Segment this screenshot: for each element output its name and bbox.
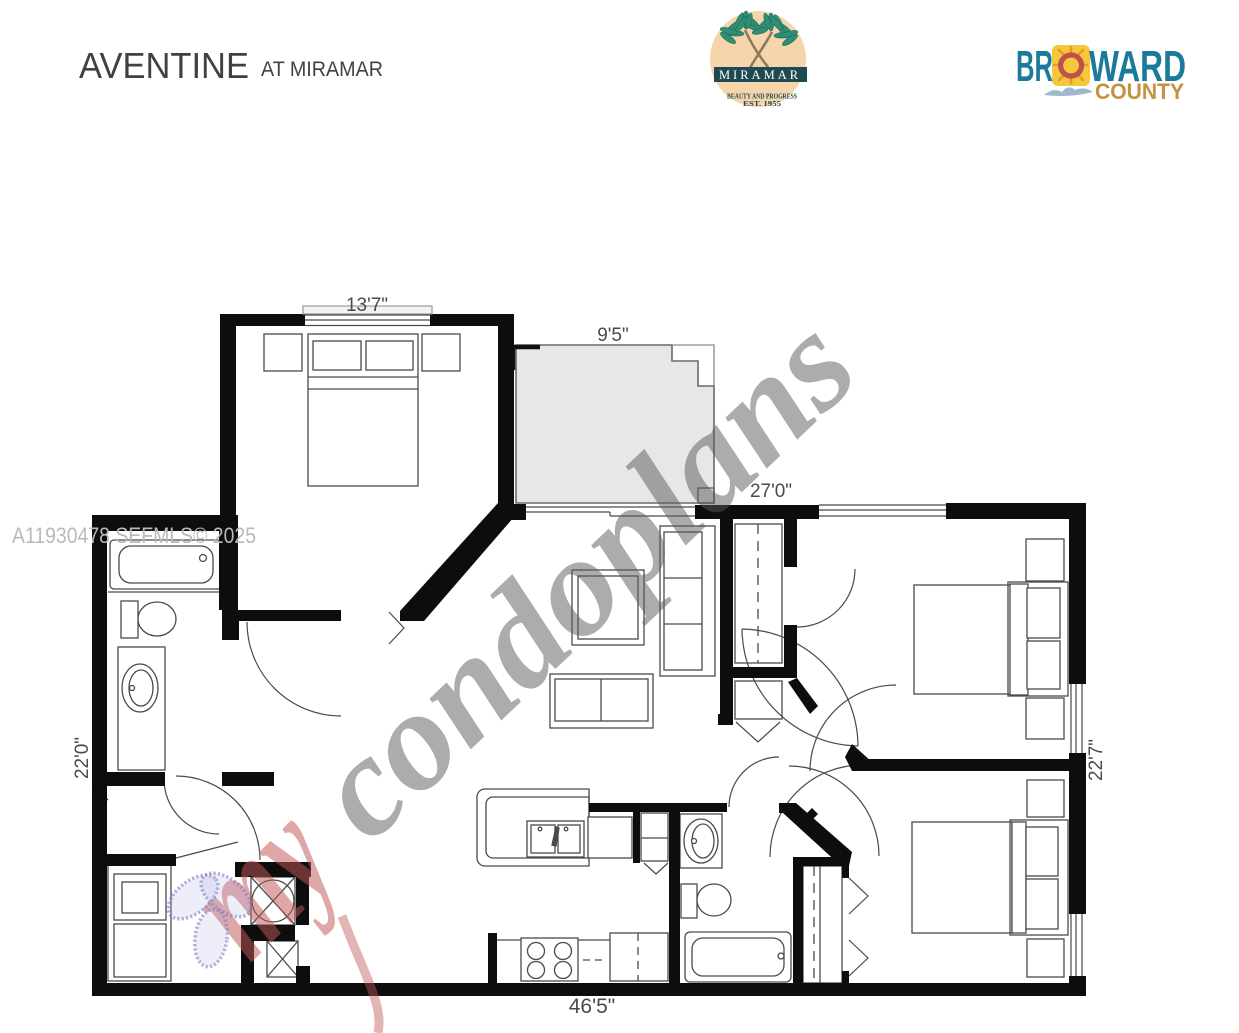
svg-text:27'0": 27'0" xyxy=(750,481,792,502)
svg-text:13'7": 13'7" xyxy=(346,295,388,316)
svg-text:9'5": 9'5" xyxy=(597,325,629,346)
svg-text:22'7": 22'7" xyxy=(1086,739,1107,781)
svg-text:COUNTY: COUNTY xyxy=(1095,79,1184,104)
svg-text:EST. 1955: EST. 1955 xyxy=(743,100,782,108)
svg-text:22'0": 22'0" xyxy=(72,737,93,779)
svg-text:AT MIRAMAR: AT MIRAMAR xyxy=(261,58,383,81)
svg-text:A11930478 SEFMLS© 2025: A11930478 SEFMLS© 2025 xyxy=(12,523,256,548)
svg-text:BR: BR xyxy=(1016,42,1053,91)
svg-text:46'5": 46'5" xyxy=(569,995,616,1018)
svg-text:AVENTINE: AVENTINE xyxy=(79,45,249,86)
svg-text:MIRAMAR: MIRAMAR xyxy=(719,68,801,82)
